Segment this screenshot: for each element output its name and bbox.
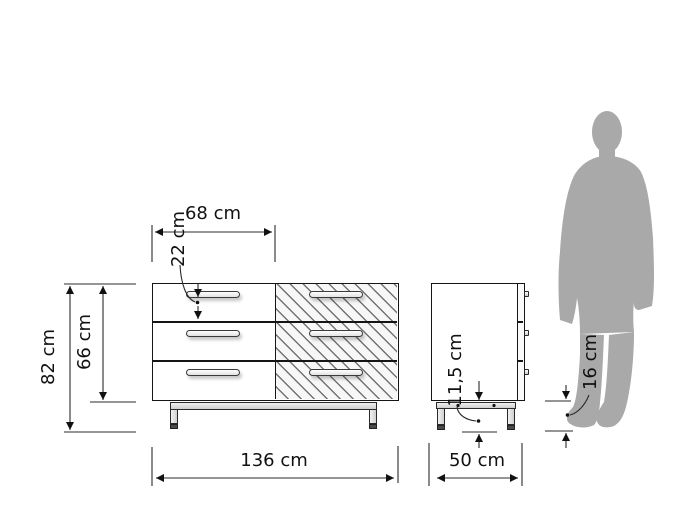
front-left-foot	[170, 424, 178, 429]
front-right-foot	[369, 424, 377, 429]
hatched-panel	[276, 284, 397, 399]
drawer-handle	[309, 369, 363, 376]
drawer-handle	[186, 369, 240, 376]
side-view-drawer-fronts	[517, 283, 525, 401]
man-silhouette	[548, 106, 666, 432]
front-base-rail	[170, 402, 377, 410]
side-drawer-divider	[518, 360, 523, 362]
dimension-label-half-width: 68 cm	[185, 205, 241, 223]
side-back-foot	[507, 425, 515, 430]
side-handle-knob	[524, 330, 529, 336]
dimension-label-total-width: 136 cm	[240, 452, 308, 470]
side-front-leg	[437, 408, 445, 425]
drawer-handle	[186, 291, 240, 298]
side-handle-knob	[524, 291, 529, 297]
silhouette-torso-arms	[559, 156, 655, 334]
front-view-body	[152, 283, 399, 401]
silhouette-neck	[599, 144, 615, 159]
front-right-leg	[369, 409, 377, 424]
drawer-row-divider	[153, 321, 397, 323]
dimension-lines	[0, 0, 700, 526]
silhouette-head	[592, 111, 622, 153]
drawer-handle	[186, 330, 240, 337]
dimension-label-depth: 50 cm	[449, 452, 505, 470]
side-drawer-divider	[518, 321, 523, 323]
side-back-leg	[507, 408, 515, 425]
dimension-label-total-height: 82 cm	[40, 329, 58, 385]
drawer-handle	[309, 291, 363, 298]
drawer-row-divider	[153, 360, 397, 362]
dimension-drawing: 68 cm 22 cm 82 cm 66 cm 136 cm 50 cm 11,…	[0, 0, 700, 526]
front-left-leg	[170, 409, 178, 424]
dimension-label-body-height: 66 cm	[76, 314, 94, 370]
dimension-label-leg-clearance: 16 cm	[582, 334, 600, 390]
side-front-foot	[437, 425, 445, 430]
side-handle-knob	[524, 369, 529, 375]
dimension-label-drawer-height: 22 cm	[170, 211, 188, 267]
drawer-handle	[309, 330, 363, 337]
drawer-column-divider	[275, 284, 277, 399]
silhouette-right-leg	[597, 332, 634, 427]
dimension-label-frame-clearance: 11,5 cm	[447, 333, 465, 406]
